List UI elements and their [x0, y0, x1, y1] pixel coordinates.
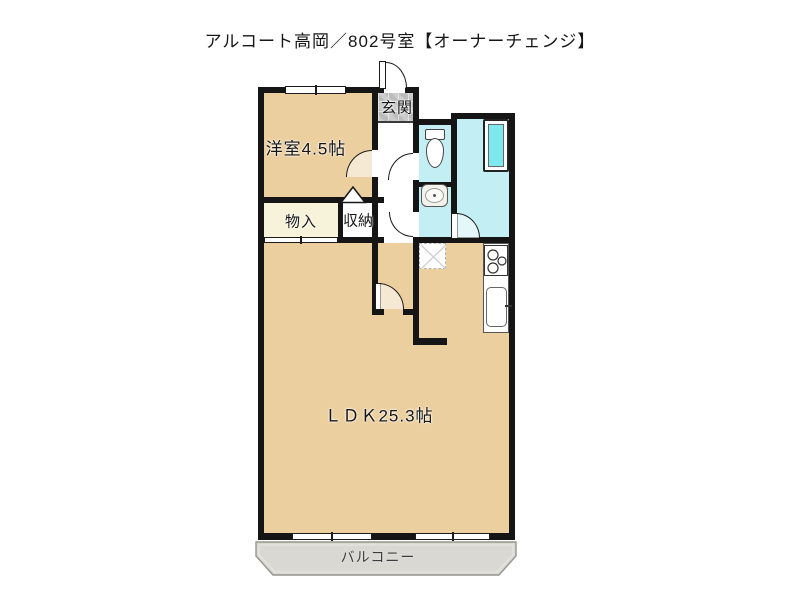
bathtub-water-icon [488, 124, 504, 167]
entrance-label: 玄関 [381, 97, 413, 118]
front-door-arc [386, 62, 407, 88]
window-ldk-right-tick [452, 532, 454, 541]
wall-kitchen-stub [413, 338, 447, 345]
western-door-opening [372, 150, 378, 177]
wall-left [258, 87, 264, 539]
wall-right [509, 113, 515, 540]
stove-icon [484, 245, 508, 276]
washroom-door-opening [413, 212, 419, 237]
closet-label: 収納 [343, 210, 373, 231]
balcony-label: バルコニー [341, 547, 416, 567]
toilet-door-opening [413, 153, 419, 180]
window-ldk-left-tick [331, 532, 333, 541]
wall-top-a [258, 87, 285, 93]
storage-label: 物入 [285, 211, 317, 232]
page-title: アルコート高岡／802号室【オーナーチェンジ】 [0, 27, 800, 52]
refrigerator-space-icon [419, 243, 446, 269]
wall-hall-left [372, 87, 378, 315]
wall-hall-bottom-b [403, 309, 419, 315]
window-western-tick [315, 85, 317, 95]
kitchen-faucet-icon [505, 305, 512, 307]
storage-door-tick [300, 236, 302, 244]
washbasin-drain-icon [433, 194, 436, 197]
western-room-label: 洋室4.5帖 [266, 135, 347, 160]
ldk-label: ＬＤＫ25.3帖 [324, 402, 433, 427]
front-door-panel [379, 61, 386, 89]
closet-door-triangle-icon [339, 185, 367, 204]
kitchen-sink-icon [486, 287, 507, 327]
entrance-step-line [378, 121, 413, 123]
floor-plan: アルコート高岡／802号室【オーナーチェンジ】 [0, 0, 800, 600]
